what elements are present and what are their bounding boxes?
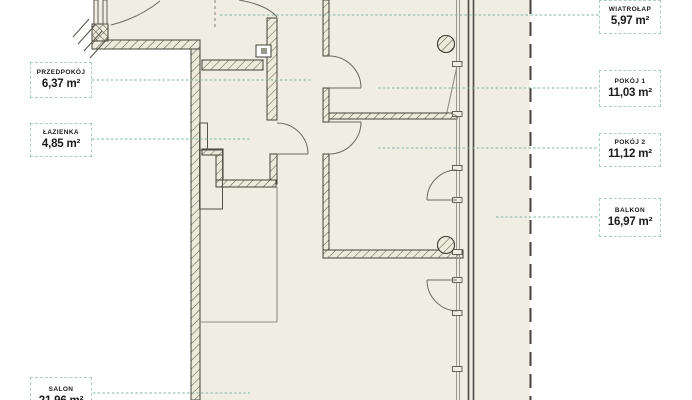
room-name: POKÓJ 1	[615, 78, 646, 86]
room-name: PRZEDPOKÓJ	[37, 69, 86, 77]
floor-area	[93, 0, 530, 400]
floor-plan-drawing	[0, 0, 692, 400]
room-name: SALON	[49, 386, 74, 394]
room-area: 16,97 m²	[608, 216, 652, 229]
room-label-pokoj1: POKÓJ 1 11,03 m²	[599, 70, 661, 107]
room-name: ŁAZIENKA	[43, 129, 79, 137]
room-name: BALKON	[615, 207, 645, 215]
room-area: 6,37 m²	[42, 78, 80, 91]
room-label-balkon: BALKON 16,97 m²	[599, 198, 661, 237]
room-label-przedpokoj: PRZEDPOKÓJ 6,37 m²	[30, 62, 92, 98]
floor-plan-page: WIATROŁAP 5,97 m² POKÓJ 1 11,03 m² POKÓJ…	[0, 0, 692, 400]
room-area: 4,85 m²	[42, 138, 80, 151]
room-label-lazienka: ŁAZIENKA 4,85 m²	[30, 123, 92, 157]
room-name: POKÓJ 2	[615, 139, 646, 147]
room-area: 11,03 m²	[608, 87, 652, 100]
room-label-salon: SALON 21,96 m²	[30, 377, 92, 400]
room-label-pokoj2: POKÓJ 2 11,12 m²	[599, 133, 661, 167]
room-area: 11,12 m²	[608, 148, 652, 161]
room-name: WIATROŁAP	[609, 6, 651, 14]
room-label-wiatrolap: WIATROŁAP 5,97 m²	[599, 0, 661, 34]
room-area: 21,96 m²	[39, 395, 83, 400]
room-area: 5,97 m²	[611, 15, 649, 28]
